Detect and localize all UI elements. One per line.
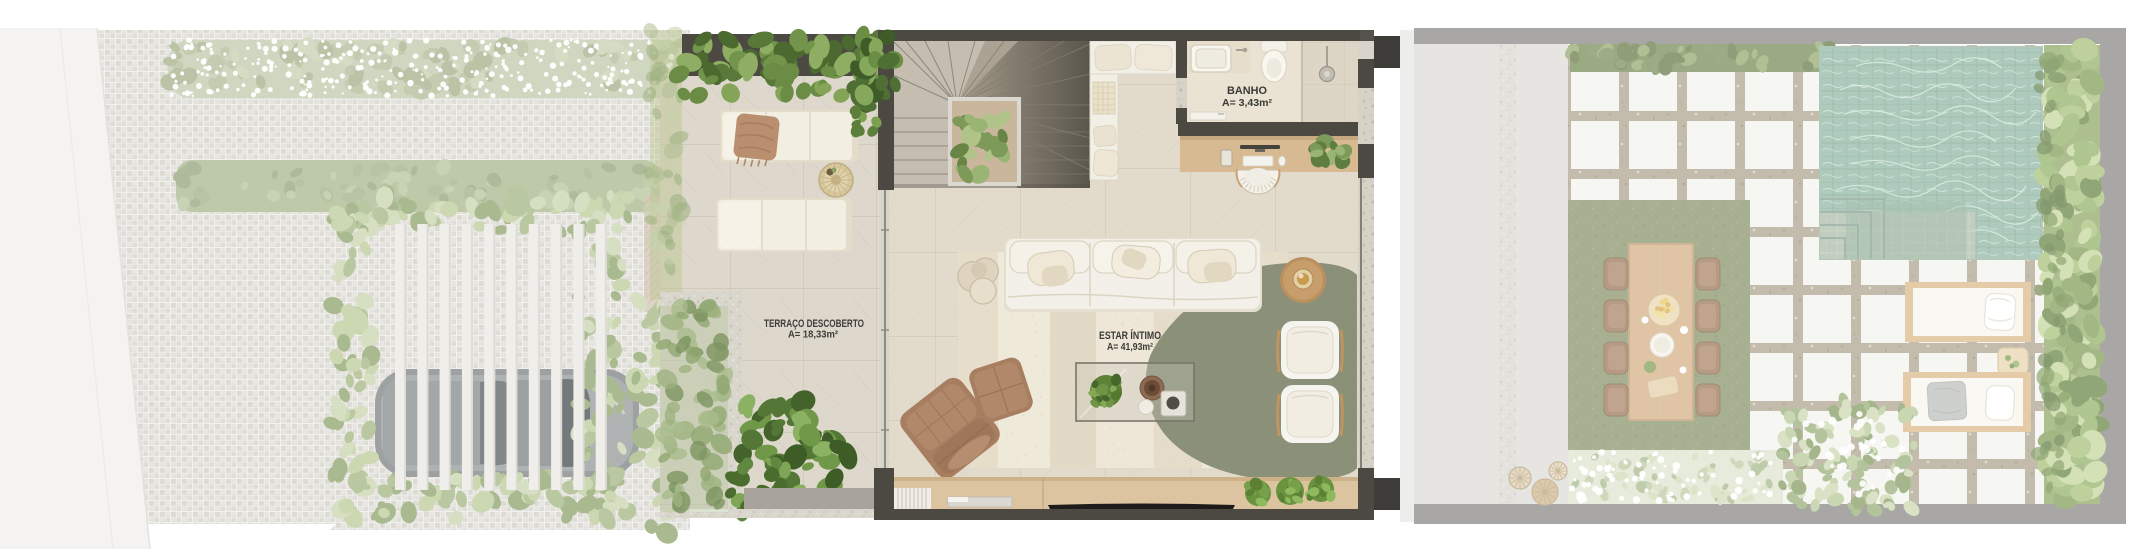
svg-text:A= 18,33m²: A= 18,33m² [788, 330, 839, 341]
svg-text:BANHO: BANHO [1227, 85, 1267, 97]
svg-text:ESTAR ÍNTIMO: ESTAR ÍNTIMO [1099, 329, 1161, 342]
svg-text:A= 3,43m²: A= 3,43m² [1222, 98, 1273, 109]
svg-text:A= 41,93m²: A= 41,93m² [1107, 342, 1154, 353]
svg-text:TERRAÇO DESCOBERTO: TERRAÇO DESCOBERTO [764, 318, 864, 330]
